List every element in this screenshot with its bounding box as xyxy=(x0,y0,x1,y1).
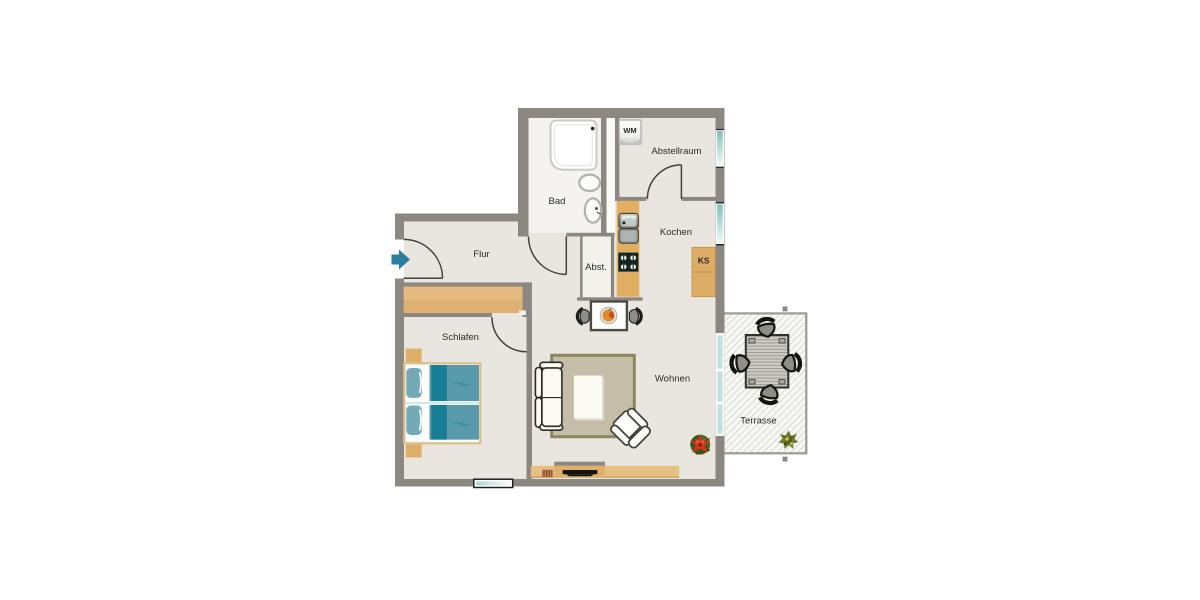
svg-text:Bad: Bad xyxy=(549,196,566,207)
svg-text:Abst.: Abst. xyxy=(585,262,607,273)
svg-text:Wohnen: Wohnen xyxy=(655,374,690,385)
svg-text:Schlafen: Schlafen xyxy=(442,332,479,343)
svg-text:Abstellraum: Abstellraum xyxy=(651,146,701,157)
svg-text:KS: KS xyxy=(698,256,710,266)
svg-text:Flur: Flur xyxy=(473,249,489,260)
svg-text:Terrasse: Terrasse xyxy=(740,415,776,426)
svg-text:WM: WM xyxy=(623,126,636,135)
svg-text:Kochen: Kochen xyxy=(660,227,692,238)
